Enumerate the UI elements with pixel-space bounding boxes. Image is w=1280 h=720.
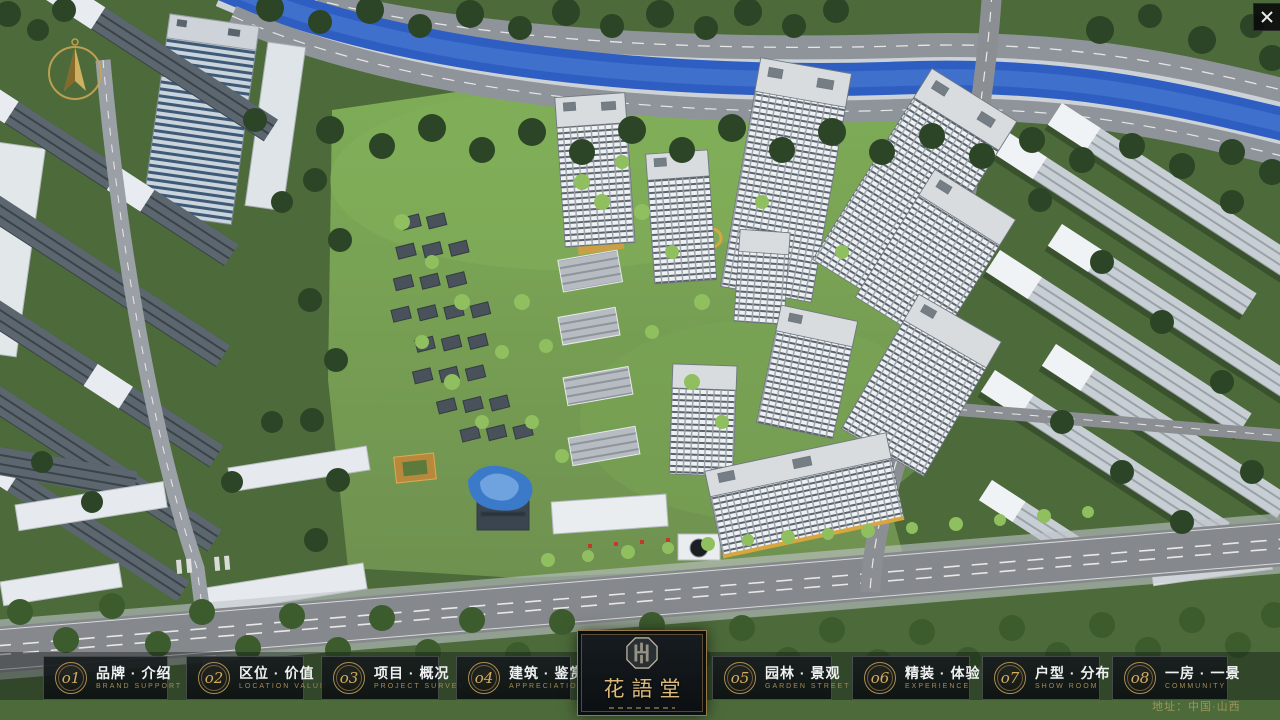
nav-item-architecture[interactable]: o4 建筑 · 鉴赏 APPRECIATION <box>456 656 571 700</box>
nav-sublabel: COMMUNITY <box>1165 683 1240 690</box>
nav-item-location[interactable]: o2 区位 · 价值 LOCATION VALUE <box>186 656 304 700</box>
nav-number-badge: o4 <box>468 662 500 694</box>
nav-number-badge: o1 <box>55 662 87 694</box>
nav-sublabel: EXPERIENCE <box>905 683 980 690</box>
nav-sublabel: PROJECT SURVEY <box>374 683 465 690</box>
nav-item-project[interactable]: o3 项目 · 概况 PROJECT SURVEY <box>321 656 439 700</box>
close-icon <box>1259 9 1275 25</box>
nav-label: 一房 · 一景 <box>1165 666 1240 680</box>
brand-subtitle-rule <box>609 707 675 709</box>
project-address: 地址：中国·山西 <box>1152 698 1241 714</box>
presentation-window: o1 品牌 · 介绍 BRAND SUPPORT o2 区位 · 价值 LOCA… <box>0 0 1280 720</box>
nav-item-community[interactable]: o8 一房 · 一景 COMMUNITY <box>1112 656 1228 700</box>
close-button[interactable] <box>1253 3 1280 31</box>
nav-sublabel: LOCATION VALUE <box>239 683 327 690</box>
octagon-seal-icon <box>626 637 658 669</box>
nav-label: 户型 · 分布 <box>1035 666 1110 680</box>
nav-item-brand[interactable]: o1 品牌 · 介绍 BRAND SUPPORT <box>43 656 168 700</box>
nav-number-badge: o2 <box>198 662 230 694</box>
nav-label: 建筑 · 鉴赏 <box>509 666 585 680</box>
nav-number-badge: o7 <box>994 662 1026 694</box>
nav-number-badge: o3 <box>333 662 365 694</box>
nav-item-interior[interactable]: o6 精装 · 体验 EXPERIENCE <box>852 656 970 700</box>
nav-item-floorplans[interactable]: o7 户型 · 分布 SHOW ROOM <box>982 656 1100 700</box>
nav-number-badge: o8 <box>1124 662 1156 694</box>
nav-sublabel: BRAND SUPPORT <box>96 683 182 690</box>
nav-label: 项目 · 概况 <box>374 666 465 680</box>
nav-number-badge: o5 <box>724 662 756 694</box>
nav-sublabel: GARDEN STREET <box>765 683 851 690</box>
nav-item-garden[interactable]: o5 园林 · 景观 GARDEN STREET <box>712 656 832 700</box>
nav-number-badge: o6 <box>864 662 896 694</box>
compass-north-indicator[interactable] <box>42 33 108 105</box>
brand-title: 花語堂 <box>597 673 688 703</box>
nav-label: 区位 · 价值 <box>239 666 327 680</box>
nav-sublabel: APPRECIATION <box>509 683 585 690</box>
nav-label: 园林 · 景观 <box>765 666 851 680</box>
nav-label: 品牌 · 介绍 <box>96 666 182 680</box>
nav-label: 精装 · 体验 <box>905 666 980 680</box>
brand-logo-panel[interactable]: 花語堂 <box>577 630 707 716</box>
aerial-masterplan-view[interactable] <box>0 0 1280 720</box>
nav-sublabel: SHOW ROOM <box>1035 683 1110 690</box>
